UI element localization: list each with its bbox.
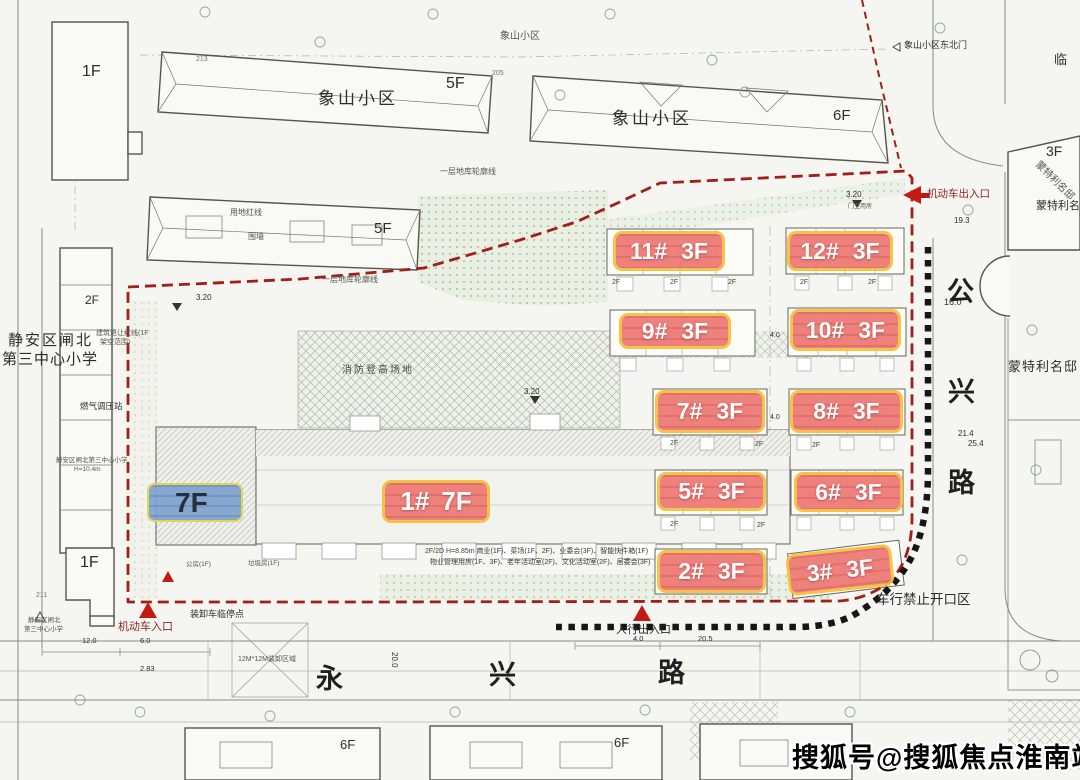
label-guard-house: 门卫用房 (848, 204, 872, 210)
label-school-line2: 第三中心小学 (2, 352, 98, 368)
building-number: 3# (806, 557, 834, 587)
label-1f-bottomleft: 1F (80, 555, 99, 572)
label-program-note-1: 2F/2D H=8.85m 商业(1F)、菜场(1F、2F)、业委会(3F)、智… (425, 548, 648, 555)
building-label-5: 5#3F (657, 472, 766, 511)
dim-20-5: 20.5 (698, 635, 713, 643)
label-trash-house: 垃圾房(1F) (248, 561, 279, 568)
label-mengteli-upper: 蒙特利名邸 (1036, 201, 1080, 213)
building-number: 10# (806, 317, 844, 344)
label-gas-station: 燃气调压站 (80, 402, 123, 411)
building-floors: 3F (845, 553, 875, 583)
dim-2-83: 2.83 (140, 665, 155, 673)
label-setback-line2: 架空范围) (100, 339, 130, 346)
dim-12-0: 12.0 (82, 637, 97, 645)
label-northeast-gate: 象山小区东北门 (904, 41, 967, 50)
label-6f-bottom-2: 6F (614, 736, 629, 750)
label-motor-entry-bottom: 机动车入口 (118, 622, 173, 634)
road-yongxing-char-2: 兴 (489, 653, 516, 692)
label-num-213: 213 (196, 56, 208, 63)
road-gongxing-char-3: 路 (948, 461, 975, 500)
label-fire-lane: 消防登高场地 (342, 366, 414, 377)
building-number: 9# (642, 318, 668, 345)
label-xiangshan-estate-2: 象山小区 (612, 110, 692, 128)
label-elev-320-c: 3.20 (846, 191, 862, 199)
building-label-8: 8#3F (790, 390, 903, 433)
rowhouse-2f-tag: 2F (670, 440, 678, 447)
building-floors: 7F (441, 486, 471, 517)
label-basement-outline-2: 一层地库轮廓线 (440, 168, 496, 176)
label-5f-top: 5F (446, 76, 465, 93)
building-floors: 3F (858, 317, 885, 344)
building-number: 11# (630, 238, 667, 265)
label-school-bottom-line2: 第三中心小学 (24, 627, 63, 634)
building-label-1: 1#7F (382, 480, 490, 523)
building-number: 2# (678, 558, 704, 585)
label-no-vehicle-opening: 车行禁止开口区 (876, 593, 971, 607)
label-school-small: 静安区闸北第三中心小学 (56, 458, 128, 465)
building-label-12: 12#3F (787, 231, 893, 271)
building-label-6: 6#3F (794, 472, 903, 512)
label-school-bottom-line1: 静安区闸北 (28, 618, 61, 625)
building-label-11: 11#3F (613, 231, 725, 271)
label-6f-bottom-1: 6F (340, 738, 355, 752)
building-floors: 3F (855, 479, 882, 506)
tower-label-7f: 7F (147, 483, 243, 522)
building-number: 6# (815, 479, 841, 506)
label-2f-school: 2F (85, 294, 99, 307)
label-6f-top: 6F (833, 108, 851, 124)
rowhouse-2f-tag: 2F (868, 279, 876, 286)
label-loading-spot: 装卸车临停点 (190, 610, 244, 619)
building-floors: 3F (853, 238, 880, 265)
dim-19-3: 19.3 (954, 217, 970, 225)
road-gongxing-char-2: 兴 (948, 370, 975, 409)
building-label-9: 9#3F (619, 313, 731, 349)
rowhouse-2f-tag: 2F (755, 441, 763, 448)
rowhouse-2f-tag: 2F (728, 279, 736, 286)
site-plan-canvas: 11#3F 12#3F 9#3F 10#3F 7#3F 8#3F 5#3F 6#… (0, 0, 1080, 780)
tower-floors: 7F (175, 487, 208, 519)
label-wall: 围墙 (248, 233, 264, 241)
rowhouse-2f-tag: 2F (670, 521, 678, 528)
building-number: 5# (678, 478, 704, 505)
building-floors: 3F (718, 478, 745, 505)
dim-4-0-mid1: 4.0 (770, 332, 780, 339)
building-label-2: 2#3F (657, 550, 766, 593)
label-pedestrian-entry: 人行出入口 (616, 625, 671, 637)
label-num-211: 211 (36, 592, 47, 599)
plan-linework (0, 0, 1080, 780)
building-number: 8# (813, 398, 839, 425)
dim-4-0-mid2: 4.0 (770, 414, 780, 421)
building-floors: 3F (681, 238, 708, 265)
dim-21-4: 21.4 (958, 430, 974, 438)
label-basement-outline-1: 一层地库轮廓线 (322, 276, 378, 284)
label-elev-320-a: 3.20 (196, 294, 212, 302)
label-site-redline: 用地红线 (230, 209, 262, 217)
building-number: 1# (400, 486, 429, 517)
label-1f-topleft: 1F (82, 64, 101, 81)
building-floors: 3F (716, 398, 743, 425)
label-3f-right: 3F (1046, 144, 1062, 159)
sohu-watermark: 搜狐号@搜狐焦点淮南站 (792, 736, 1080, 775)
label-5f-left: 5F (374, 221, 392, 237)
road-yongxing-char-1: 永 (316, 657, 343, 696)
building-floors: 3F (853, 398, 880, 425)
dim-20-0-vertical: 20.0 (390, 652, 398, 668)
building-number: 7# (677, 398, 703, 425)
road-gongxing-char-1: 公 (947, 270, 974, 309)
building-floors: 3F (681, 318, 708, 345)
rowhouse-2f-tag: 2F (800, 279, 808, 286)
label-setback-line1: 建筑退让红线(1F (96, 330, 149, 337)
rowhouse-2f-tag: 2F (812, 442, 820, 449)
building-number: 12# (800, 238, 838, 265)
label-school-height: H=10.4m (74, 467, 101, 474)
label-xiangshan-small-top: 象山小区 (500, 32, 540, 43)
dim-25-4: 25.4 (968, 440, 984, 448)
label-num-205: 205 (492, 70, 504, 77)
label-elev-320-b: 3.20 (524, 388, 540, 396)
label-school-line1: 静安区闸北 (8, 333, 93, 349)
building-floors: 3F (718, 558, 745, 585)
road-yongxing-char-3: 路 (658, 651, 685, 690)
label-loading-area: 12M*12M装卸区域 (238, 656, 296, 663)
label-xiangshan-estate-1: 象山小区 (318, 90, 398, 108)
rowhouse-2f-tag: 2F (757, 522, 765, 529)
rowhouse-2f-tag: 2F (670, 279, 678, 286)
label-public-house: 公房(1F) (186, 562, 211, 569)
dim-6-0: 6.0 (140, 637, 150, 645)
rowhouse-2f-tag: 2F (612, 279, 620, 286)
building-label-7: 7#3F (655, 390, 765, 433)
label-program-note-2: 物业管理用房(1F、3F)、老年活动室(2F)、文化活动室(2F)、居委会(3F… (430, 559, 651, 566)
label-lin: 临 (1054, 53, 1067, 67)
building-label-10: 10#3F (790, 309, 901, 351)
label-motor-exit-right: 机动车出入口 (927, 189, 990, 200)
gate-northeast-icon (893, 43, 900, 51)
label-mengteli-mid: 蒙特利名邸 (1008, 360, 1078, 374)
dim-4-0-bottom: 4.0 (633, 635, 643, 643)
